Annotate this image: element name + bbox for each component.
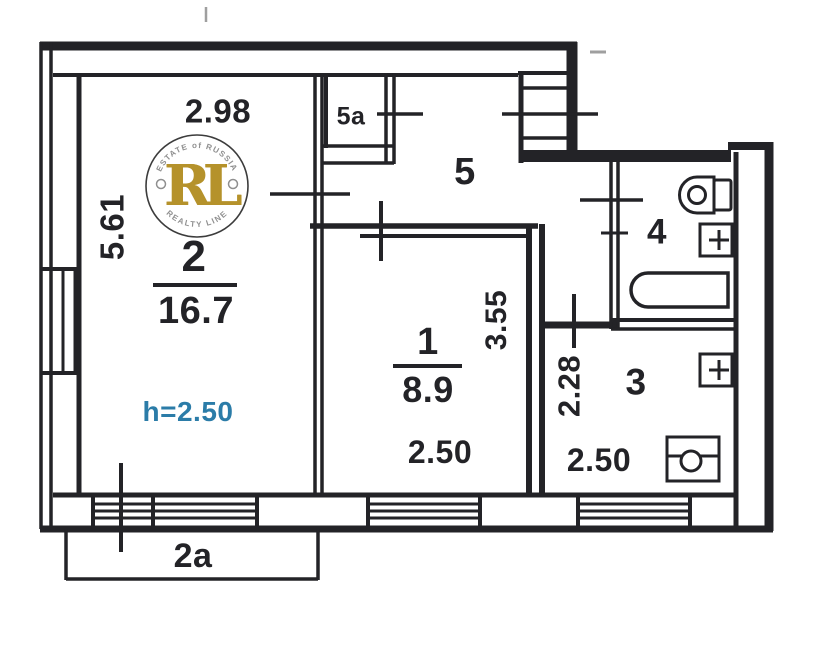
kitchen-sink-icon	[700, 354, 732, 386]
room2-fraction-bar	[153, 283, 237, 287]
balcony-label: 2a	[174, 539, 213, 573]
toilet-icon	[680, 177, 732, 213]
room1-width-dim: 2.50	[408, 436, 472, 468]
vent-shaft	[502, 71, 598, 163]
hallway-number-label: 5	[454, 153, 476, 191]
room2-left-window	[40, 269, 77, 373]
bathroom-number-label: 4	[647, 215, 667, 250]
room1-area-label: 8.9	[402, 372, 454, 408]
floorplan-canvas: ESTATE of RUSSIA REALTY LINE 2.98 5.61 2…	[0, 0, 837, 650]
kitchen-depth-dim: 2.28	[554, 355, 585, 417]
room2-depth-dim: 5.61	[96, 194, 129, 260]
bathroom-sink-icon	[700, 224, 732, 256]
ceiling-height-note: h=2.50	[143, 398, 234, 426]
closet-number-label: 5a	[337, 105, 366, 130]
bathtub-icon	[631, 273, 728, 307]
room1-number-label: 1	[417, 323, 439, 361]
room2-number-label: 2	[182, 235, 207, 279]
room2-width-dim: 2.98	[185, 95, 251, 128]
kitchen-number-label: 3	[625, 364, 646, 401]
room1-bottom-window	[368, 495, 480, 529]
room1-depth-dim: 3.55	[482, 290, 512, 350]
room1-fraction-bar	[393, 364, 462, 368]
kitchen-width-dim: 2.50	[567, 444, 631, 476]
kitchen-bottom-window	[578, 495, 690, 529]
stove-icon	[667, 437, 719, 481]
watermark-monogram: RL	[164, 158, 234, 214]
room2-area-label: 16.7	[158, 292, 234, 330]
